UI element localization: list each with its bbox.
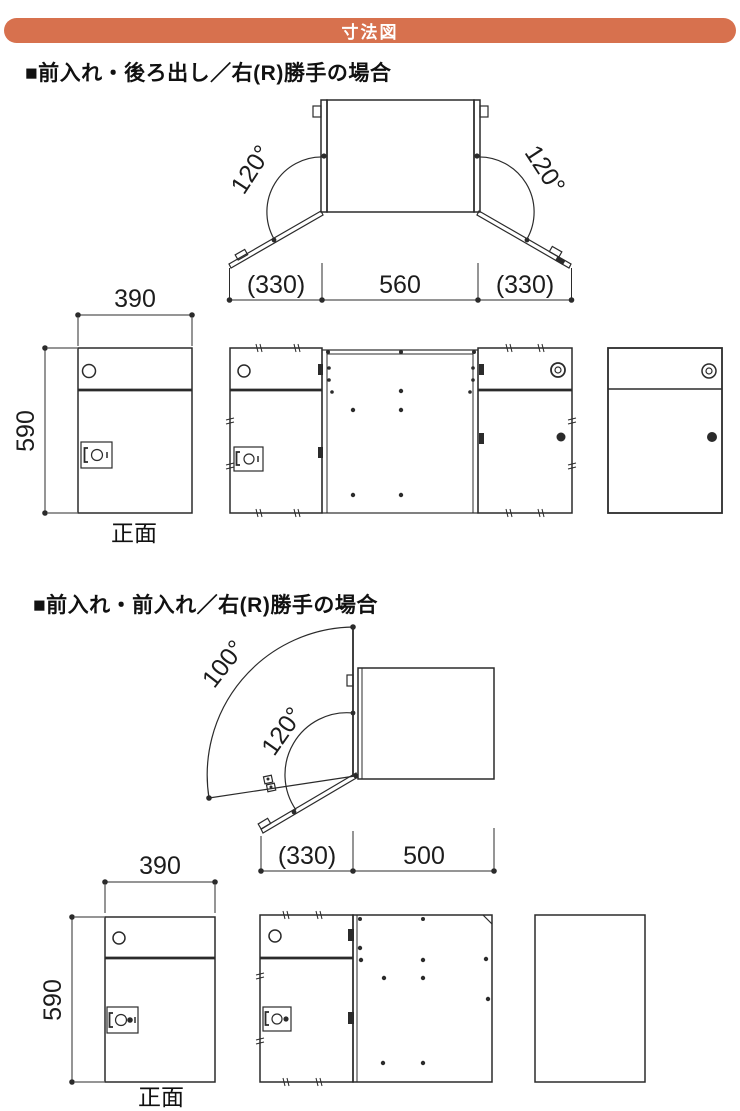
dim-330-right: (330) xyxy=(496,271,554,299)
section2-rear-view xyxy=(535,915,645,1082)
section2-top-view: 100° 120° (330) 500 xyxy=(197,624,497,874)
angle-120-left: 120° xyxy=(225,140,277,199)
front-panel xyxy=(105,917,215,1082)
open-door-120 xyxy=(261,773,358,833)
dim-500: 500 xyxy=(403,842,445,870)
box-top-outline xyxy=(358,668,494,779)
left-door-panel xyxy=(230,348,322,513)
section1-unfolded-view xyxy=(226,344,576,517)
rear-panel xyxy=(535,915,645,1082)
dim-330: (330) xyxy=(278,842,336,870)
dim-560: 560 xyxy=(379,271,421,299)
angle-120-right: 120° xyxy=(519,140,571,199)
section2-unfolded-view xyxy=(256,911,492,1086)
left-swing-arc xyxy=(267,157,324,239)
interior-panel xyxy=(322,350,478,513)
keyhole xyxy=(113,932,125,944)
dimension-diagram-page: 寸法図 ■前入れ・後ろ出し／右(R)勝手の場合 ■前入れ・前入れ／右(R)勝手の… xyxy=(0,0,740,1111)
cylinder-lock xyxy=(702,364,716,378)
width-dimension-line xyxy=(78,315,192,346)
rear-panel xyxy=(608,348,722,513)
height-dimension-line xyxy=(45,348,77,513)
front-caption: 正面 xyxy=(111,520,157,546)
cylinder-lock xyxy=(551,363,565,377)
left-latch-tab xyxy=(313,106,321,117)
dim-330-left: (330) xyxy=(247,271,305,299)
dim-590: 590 xyxy=(39,979,67,1021)
dim-590: 590 xyxy=(12,410,40,452)
front-caption: 正面 xyxy=(138,1084,184,1110)
knob xyxy=(707,432,717,442)
angle-100: 100° xyxy=(197,635,251,693)
section1-rear-view xyxy=(608,348,722,513)
left-door-panel xyxy=(260,915,353,1082)
section1-front-view: 390 590 正面 xyxy=(12,285,195,546)
keyhole xyxy=(83,365,96,378)
section1-top-view: (330) 560 (330) 120° 120° xyxy=(225,100,574,303)
dim-390: 390 xyxy=(139,852,181,880)
open-door-interior xyxy=(353,915,492,1082)
angle-120: 120° xyxy=(256,702,309,760)
hinge-tab xyxy=(479,433,484,444)
height-dimension-line xyxy=(72,917,104,1082)
lock-plate xyxy=(81,442,112,468)
drawing-svg: (330) 560 (330) 120° 120° 390 590 正面 xyxy=(0,0,740,1111)
width-dimension-line xyxy=(105,882,215,913)
lock-plate xyxy=(107,1007,138,1033)
knob xyxy=(557,433,566,442)
section2-front-view: 390 590 正面 xyxy=(39,852,218,1110)
dim-390: 390 xyxy=(114,285,156,313)
right-latch-tab xyxy=(480,106,488,117)
hinge-tab xyxy=(479,364,484,375)
box-top-outline xyxy=(327,100,474,212)
